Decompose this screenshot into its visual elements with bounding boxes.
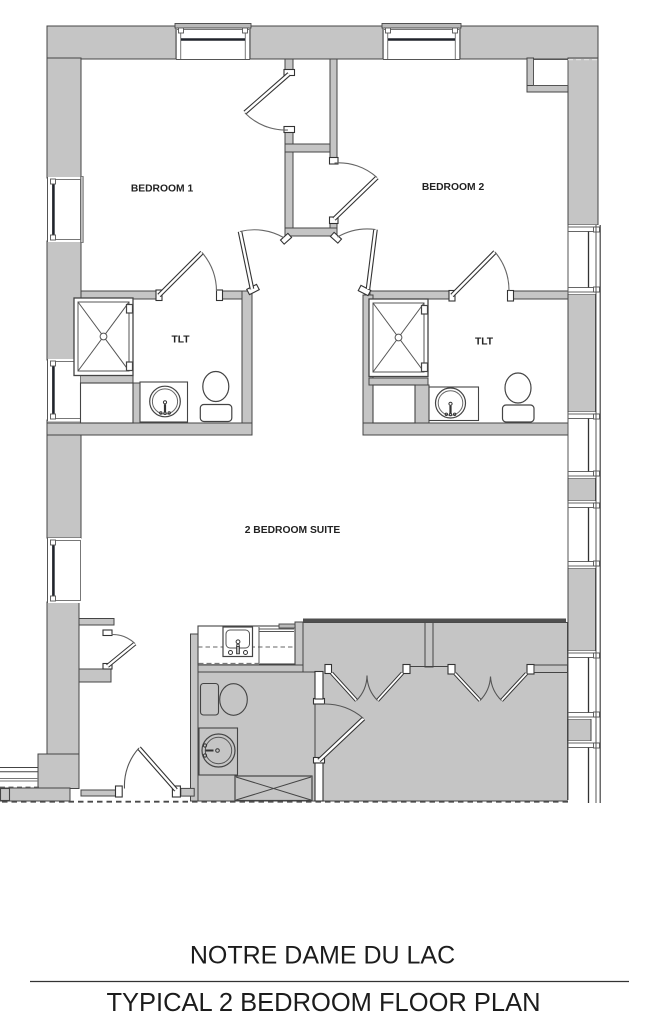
- svg-text:BEDROOM 1: BEDROOM 1: [131, 184, 194, 195]
- svg-text:NOTRE DAME DU LAC: NOTRE DAME DU LAC: [190, 942, 455, 970]
- svg-text:2 BEDROOM SUITE: 2 BEDROOM SUITE: [245, 525, 341, 536]
- svg-text:TLT: TLT: [475, 337, 494, 348]
- svg-text:BEDROOM 2: BEDROOM 2: [422, 182, 485, 193]
- svg-text:TYPICAL 2 BEDROOM FLOOR PLAN: TYPICAL 2 BEDROOM FLOOR PLAN: [106, 989, 540, 1017]
- svg-text:TLT: TLT: [171, 335, 190, 346]
